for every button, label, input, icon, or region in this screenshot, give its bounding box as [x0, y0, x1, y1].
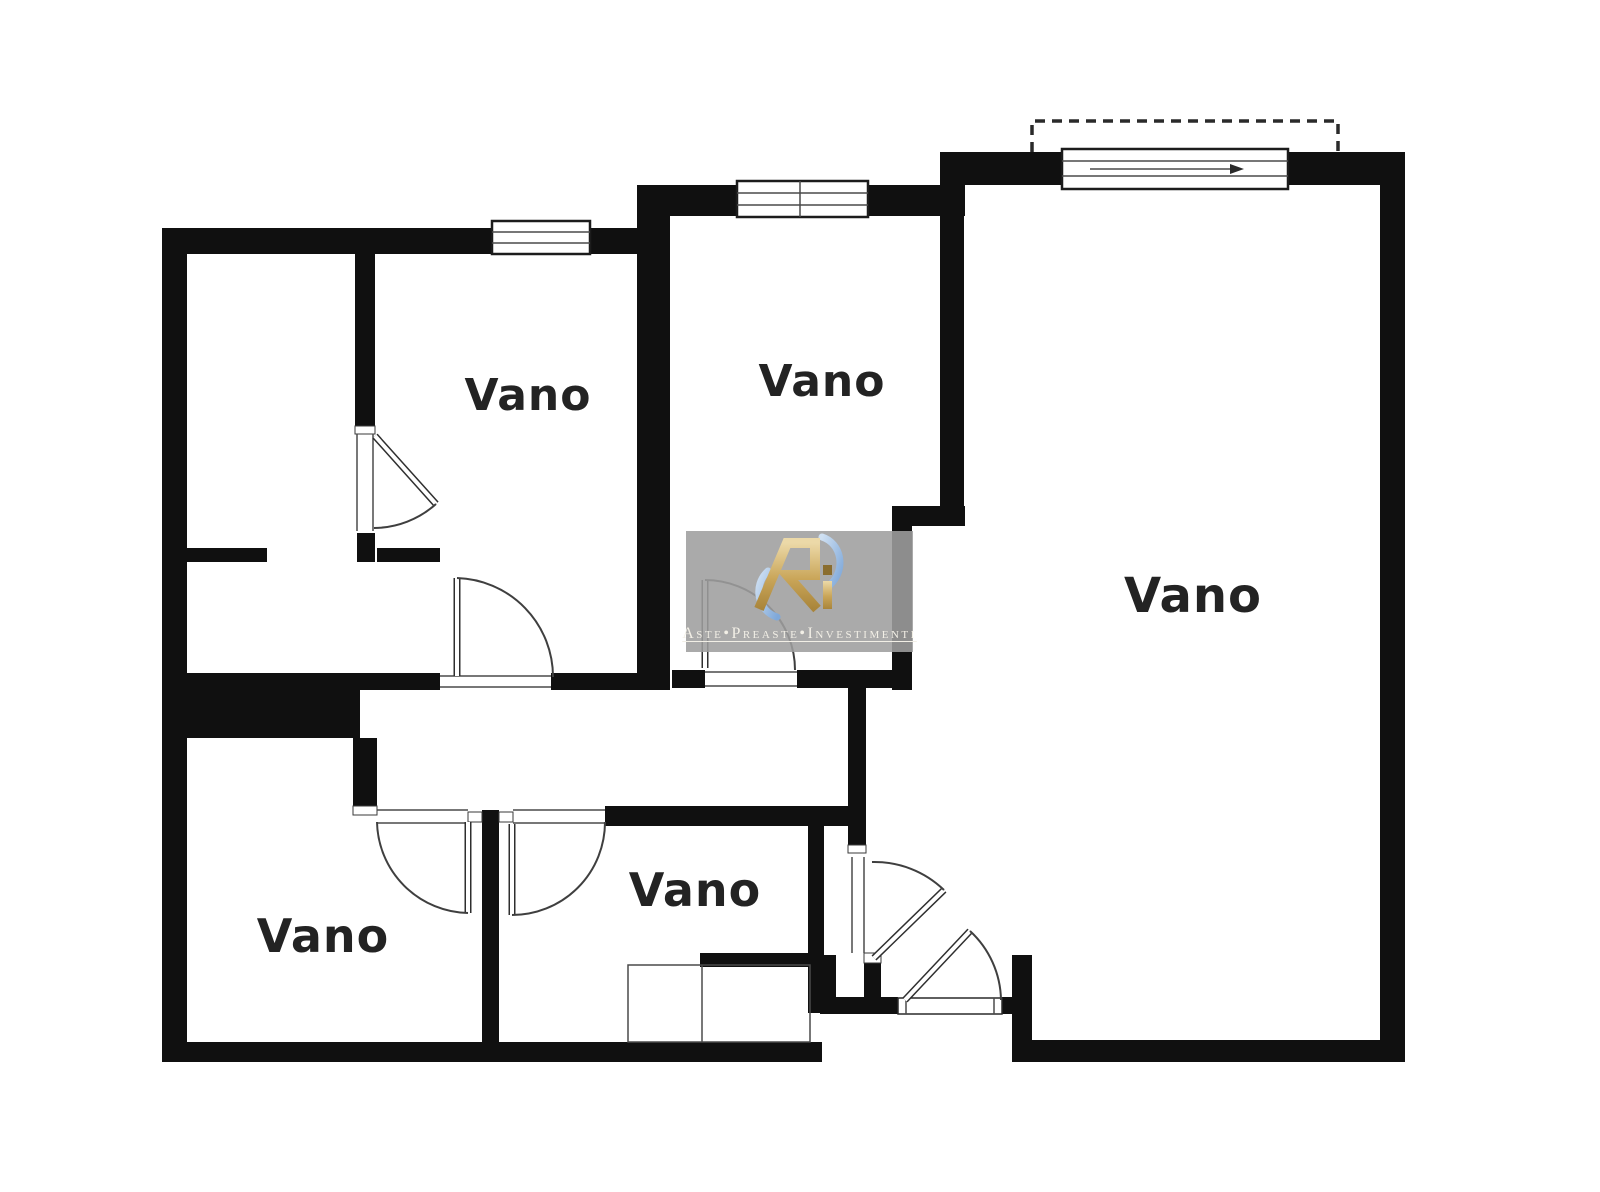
room-label-vano-2: Vano	[759, 356, 886, 407]
door1-leaf	[375, 436, 436, 504]
floor-plan-page: Vano Vano Vano Vano Vano	[0, 0, 1600, 1192]
niche-outline	[628, 965, 810, 1042]
wall-stub-below-door1	[357, 533, 375, 562]
watermark-brand-text: Aste•Preaste•Investimenti	[682, 625, 917, 643]
wall-divider-topleft-room	[355, 254, 375, 434]
wall-bottom-right-section	[1012, 1040, 1405, 1062]
watermark-overlay: Aste•Preaste•Investimenti	[686, 531, 913, 652]
door5-swing-arc	[872, 862, 944, 890]
cap-hall-right	[848, 845, 866, 853]
wall-hall-right	[848, 688, 866, 852]
door4-swing-arc	[512, 822, 605, 915]
room-label-vano-1: Vano	[465, 370, 592, 421]
entrance-threshold	[898, 998, 1002, 1014]
wall-mid-horizontal-right	[551, 673, 663, 690]
cap-divider-bottom-left	[468, 812, 482, 822]
door-hall-to-entrance	[872, 862, 944, 958]
logo-monogram-i-stem-icon	[823, 581, 832, 609]
watermark-logo	[725, 531, 875, 623]
window-top-right-sliding	[1062, 149, 1288, 189]
door-bottom-left-room	[377, 822, 468, 913]
closet-niche	[628, 965, 810, 1042]
logo-monogram-i-dot-icon	[823, 565, 832, 575]
door-vano1	[457, 578, 553, 677]
room-label-vano-3: Vano	[1124, 568, 1262, 624]
wall-thick-band-vestibule	[162, 673, 360, 738]
wall-topleft-room-bottom	[187, 548, 267, 562]
logo-monogram-r-icon	[759, 543, 817, 609]
wall-mid-horizontal-left	[360, 673, 440, 690]
wall-door5-bottom-stub	[864, 963, 881, 998]
window2-frame	[737, 181, 868, 217]
wall-divider-bottom-rooms	[482, 810, 499, 1042]
balcony-dashed-outline	[1032, 121, 1338, 152]
window-top-left	[492, 221, 590, 254]
wall-bigroom-left-upper	[940, 185, 964, 508]
door-topleft-room	[374, 436, 436, 528]
door5-leaf	[874, 890, 944, 958]
wall-nook	[377, 548, 440, 562]
door1-swing-arc	[374, 504, 436, 528]
wall-bottom-left-section	[162, 1042, 822, 1062]
wall-door6-jamb	[353, 738, 377, 814]
room-label-vano-5: Vano	[629, 863, 761, 917]
wall-right	[1380, 152, 1405, 1062]
cap-door6-jamb	[353, 806, 377, 815]
wall-entrance-right-sill	[1002, 997, 1032, 1014]
logo-blue-swoosh-top-icon	[822, 537, 840, 585]
door6-swing-arc	[377, 822, 468, 913]
cap-divider-topleft	[355, 426, 375, 434]
window1-frame	[492, 221, 590, 254]
wall-vano2-bottom-left	[672, 670, 705, 688]
cap-divider-bottom-right	[499, 812, 513, 822]
door7-swing-arc	[970, 931, 1001, 1000]
window-top-middle	[737, 181, 868, 217]
door7-leaf	[905, 931, 970, 1000]
entrance-door	[905, 931, 1001, 1000]
door2-swing-arc	[457, 578, 553, 677]
wall-divider-vano1-vano2	[637, 216, 670, 690]
wall-left	[162, 228, 187, 1062]
door-bottom-middle-room	[512, 822, 605, 915]
room-label-vano-4: Vano	[257, 909, 389, 963]
